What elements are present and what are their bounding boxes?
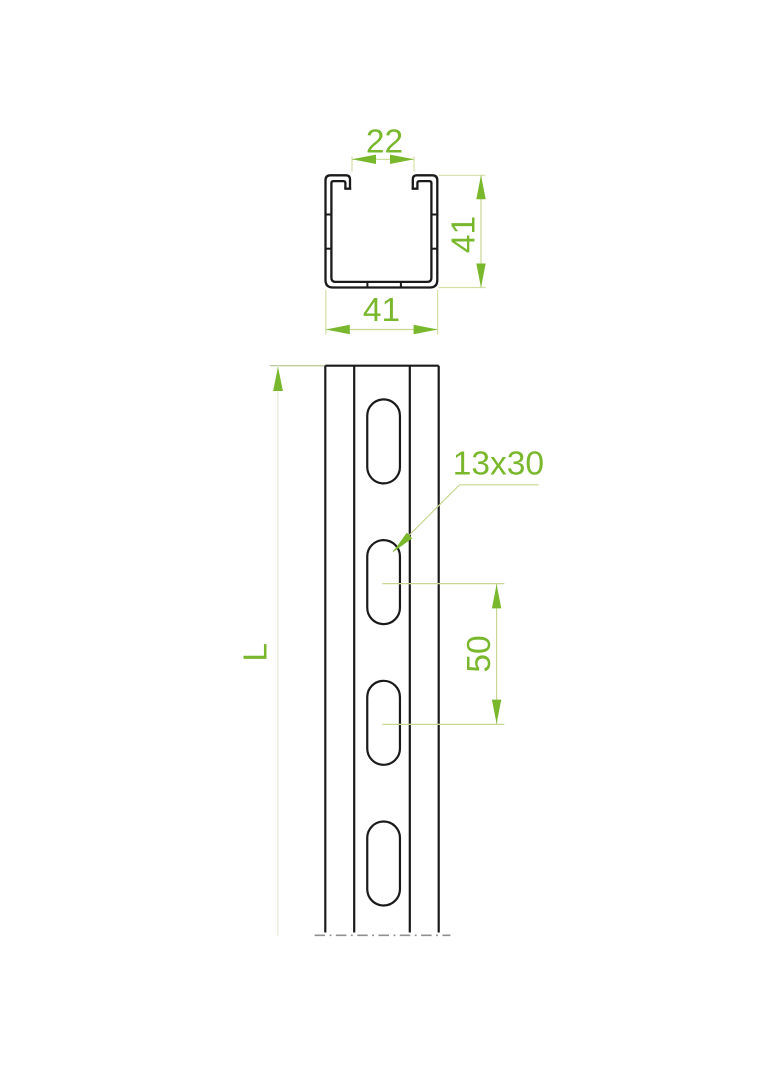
svg-text:L: L bbox=[237, 643, 274, 662]
svg-text:41: 41 bbox=[446, 216, 483, 253]
svg-text:41: 41 bbox=[363, 292, 400, 329]
svg-text:22: 22 bbox=[366, 123, 403, 160]
svg-text:50: 50 bbox=[461, 635, 498, 672]
svg-text:13x30: 13x30 bbox=[453, 446, 544, 483]
